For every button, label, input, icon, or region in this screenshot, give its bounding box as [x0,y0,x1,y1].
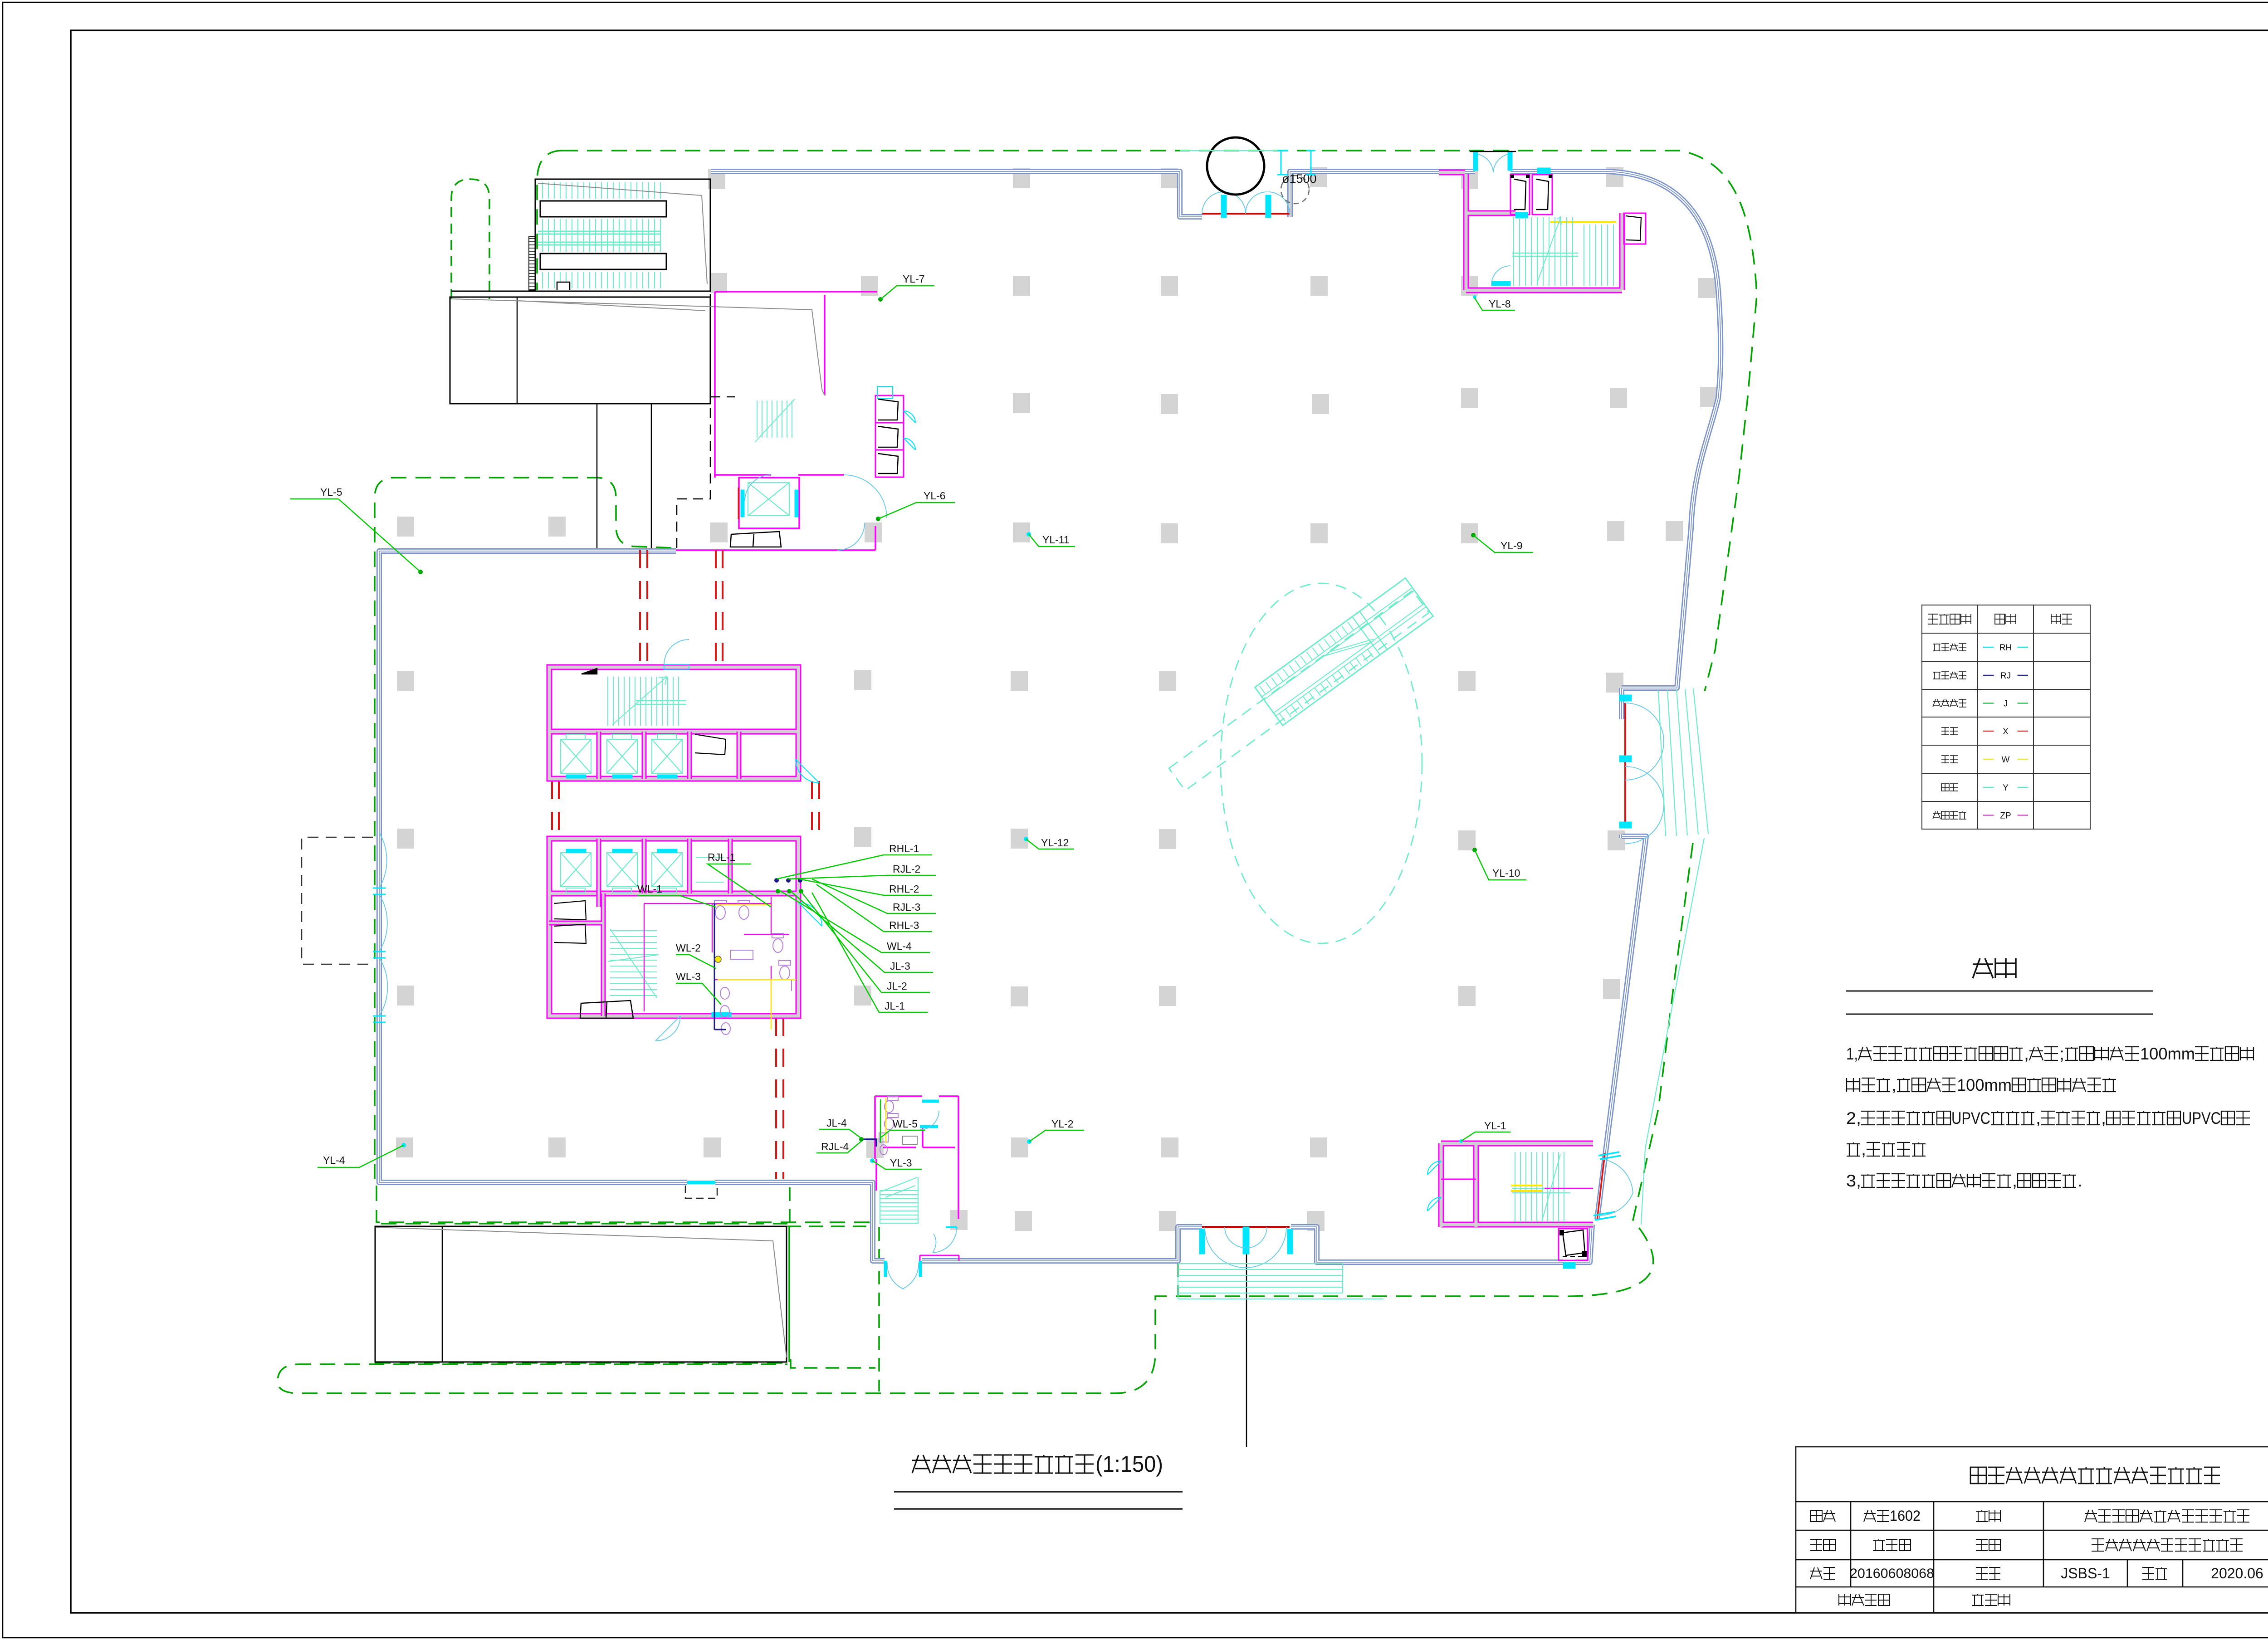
svg-text:Y: Y [2003,783,2009,793]
svg-text:JL-2: JL-2 [887,980,907,992]
svg-text:J: J [2004,699,2008,709]
svg-text:,: , [2012,1171,2017,1190]
svg-text:1602: 1602 [1890,1508,1921,1524]
svg-text:,: , [1892,1076,1897,1094]
svg-text:100mm: 100mm [2140,1045,2195,1063]
svg-text:2,: 2, [1846,1109,1861,1127]
svg-text:WL-1: WL-1 [637,883,662,895]
svg-text:,: , [2024,1045,2029,1063]
svg-text:X: X [2003,727,2009,737]
svg-text:UPVC: UPVC [2182,1109,2221,1127]
svg-text:RH: RH [1999,643,2012,653]
svg-text:3,: 3, [1846,1171,1861,1190]
svg-text:W: W [2002,755,2010,765]
svg-text:1,: 1, [1846,1045,1858,1063]
svg-text:RJL-3: RJL-3 [893,901,920,913]
svg-text:YL-1: YL-1 [1484,1120,1506,1132]
svg-text:(1:150): (1:150) [1095,1451,1163,1477]
svg-text:YL-3: YL-3 [890,1157,912,1169]
svg-text:RJL-4: RJL-4 [821,1141,849,1152]
svg-text:WL-2: WL-2 [676,942,701,954]
svg-text:2020.06: 2020.06 [2211,1565,2263,1581]
svg-text:;: ; [2059,1045,2064,1063]
svg-text:UPVC: UPVC [1951,1109,1990,1127]
svg-text:YL-9: YL-9 [1501,540,1523,552]
svg-text:YL-5: YL-5 [320,486,342,498]
svg-text:WL-3: WL-3 [676,971,701,982]
svg-text:RHL-1: RHL-1 [889,843,919,854]
svg-text:YL-6: YL-6 [924,490,946,502]
svg-text:ZP: ZP [2000,811,2011,821]
svg-text:RJL-2: RJL-2 [893,863,920,875]
svg-text:RHL-3: RHL-3 [889,919,919,931]
svg-text:WL-5: WL-5 [893,1118,918,1130]
svg-text:YL-4: YL-4 [323,1154,345,1166]
svg-text:JSBS-1: JSBS-1 [2061,1565,2110,1581]
svg-text:YL-11: YL-11 [1042,534,1070,546]
svg-text:RJ: RJ [2000,671,2011,681]
svg-text:YL-2: YL-2 [1051,1118,1074,1130]
svg-text:20160608068: 20160608068 [1850,1566,1934,1581]
svg-text:RHL-2: RHL-2 [889,883,919,895]
svg-text:JL-4: JL-4 [826,1117,847,1129]
svg-text:,: , [1861,1140,1866,1159]
svg-text:WL-4: WL-4 [887,940,912,952]
svg-text:RJL-1: RJL-1 [708,851,735,863]
svg-text:100mm: 100mm [1957,1076,2012,1094]
svg-text:.: . [2077,1171,2082,1190]
svg-text:YL-12: YL-12 [1041,837,1069,849]
svg-text:YL-7: YL-7 [903,273,925,285]
svg-text:JL-1: JL-1 [885,1000,905,1012]
svg-text:JL-3: JL-3 [890,960,910,972]
svg-text:YL-8: YL-8 [1489,298,1511,310]
svg-text:,: , [2036,1109,2041,1127]
svg-text:,: , [2101,1109,2106,1127]
svg-text:YL-10: YL-10 [1492,867,1520,879]
